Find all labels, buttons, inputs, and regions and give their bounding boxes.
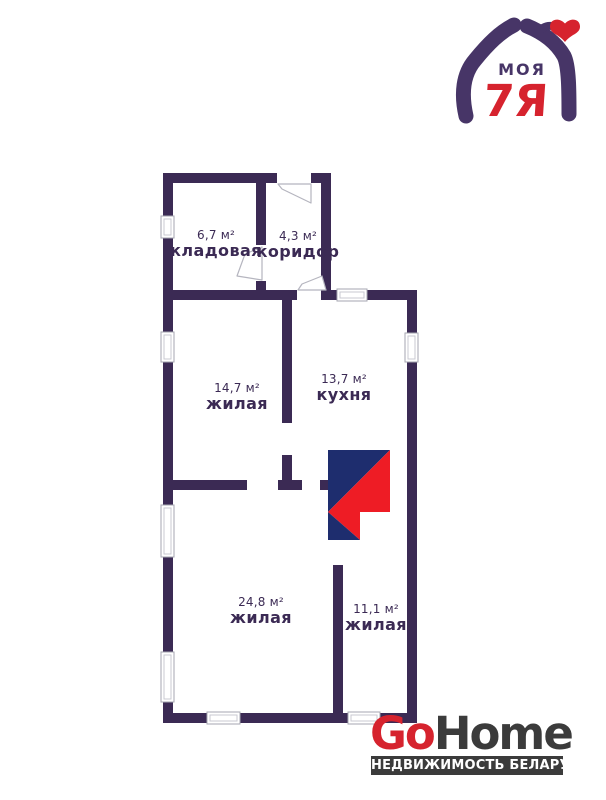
wall-segment [278, 480, 302, 490]
room-label-hallway: 4,3 м² коридор [257, 230, 340, 260]
window-symbol [405, 333, 418, 362]
room-name: кладовая [170, 242, 262, 259]
room-area: 24,8 м² [230, 596, 292, 609]
wall-segment [173, 480, 247, 490]
room-area: 6,7 м² [170, 229, 262, 242]
room-label-kitchen: 13,7 м² кухня [317, 373, 372, 403]
room-name: жилая [206, 395, 268, 412]
room-label-storage: 6,7 м² кладовая [170, 229, 262, 259]
room-label-living-3: 11,1 м² жилая [345, 603, 407, 633]
stove-symbol [328, 450, 390, 540]
room-label-living-1: 14,7 м² жилая [206, 382, 268, 412]
gohome-logo: GoHome [370, 712, 596, 756]
gohome-go-text: Go [370, 707, 434, 760]
gohome-tagline: НЕДВИЖИМОСТЬ БЕЛАРУСИ [371, 756, 563, 775]
moya-7ya-word: 7Я [482, 76, 550, 127]
room-name: кухня [317, 386, 372, 403]
door-swing [298, 276, 326, 290]
room-area: 4,3 м² [257, 230, 340, 243]
moya7ya-logo: МОЯ 7Я [448, 12, 596, 132]
room-name: коридор [257, 243, 340, 260]
wall-segment [163, 290, 297, 300]
room-area: 14,7 м² [206, 382, 268, 395]
room-area: 11,1 м² [345, 603, 407, 616]
window-symbol [161, 332, 174, 362]
wall-segment [282, 300, 292, 423]
room-area: 13,7 м² [317, 373, 372, 386]
gohome-home-text: Home [434, 707, 572, 760]
door-swing [278, 184, 311, 203]
wall-segment [163, 173, 277, 183]
room-label-living-2: 24,8 м² жилая [230, 596, 292, 626]
window-symbol [161, 652, 174, 702]
window-symbol [337, 289, 367, 301]
window-symbol [161, 505, 174, 557]
window-symbol [207, 712, 240, 724]
room-name: жилая [345, 616, 407, 633]
room-name: жилая [230, 609, 292, 626]
floorplan-page: 6,7 м² кладовая 4,3 м² коридор 14,7 м² ж… [0, 0, 606, 800]
wall-segment [333, 565, 343, 723]
wall-segment [322, 290, 417, 300]
